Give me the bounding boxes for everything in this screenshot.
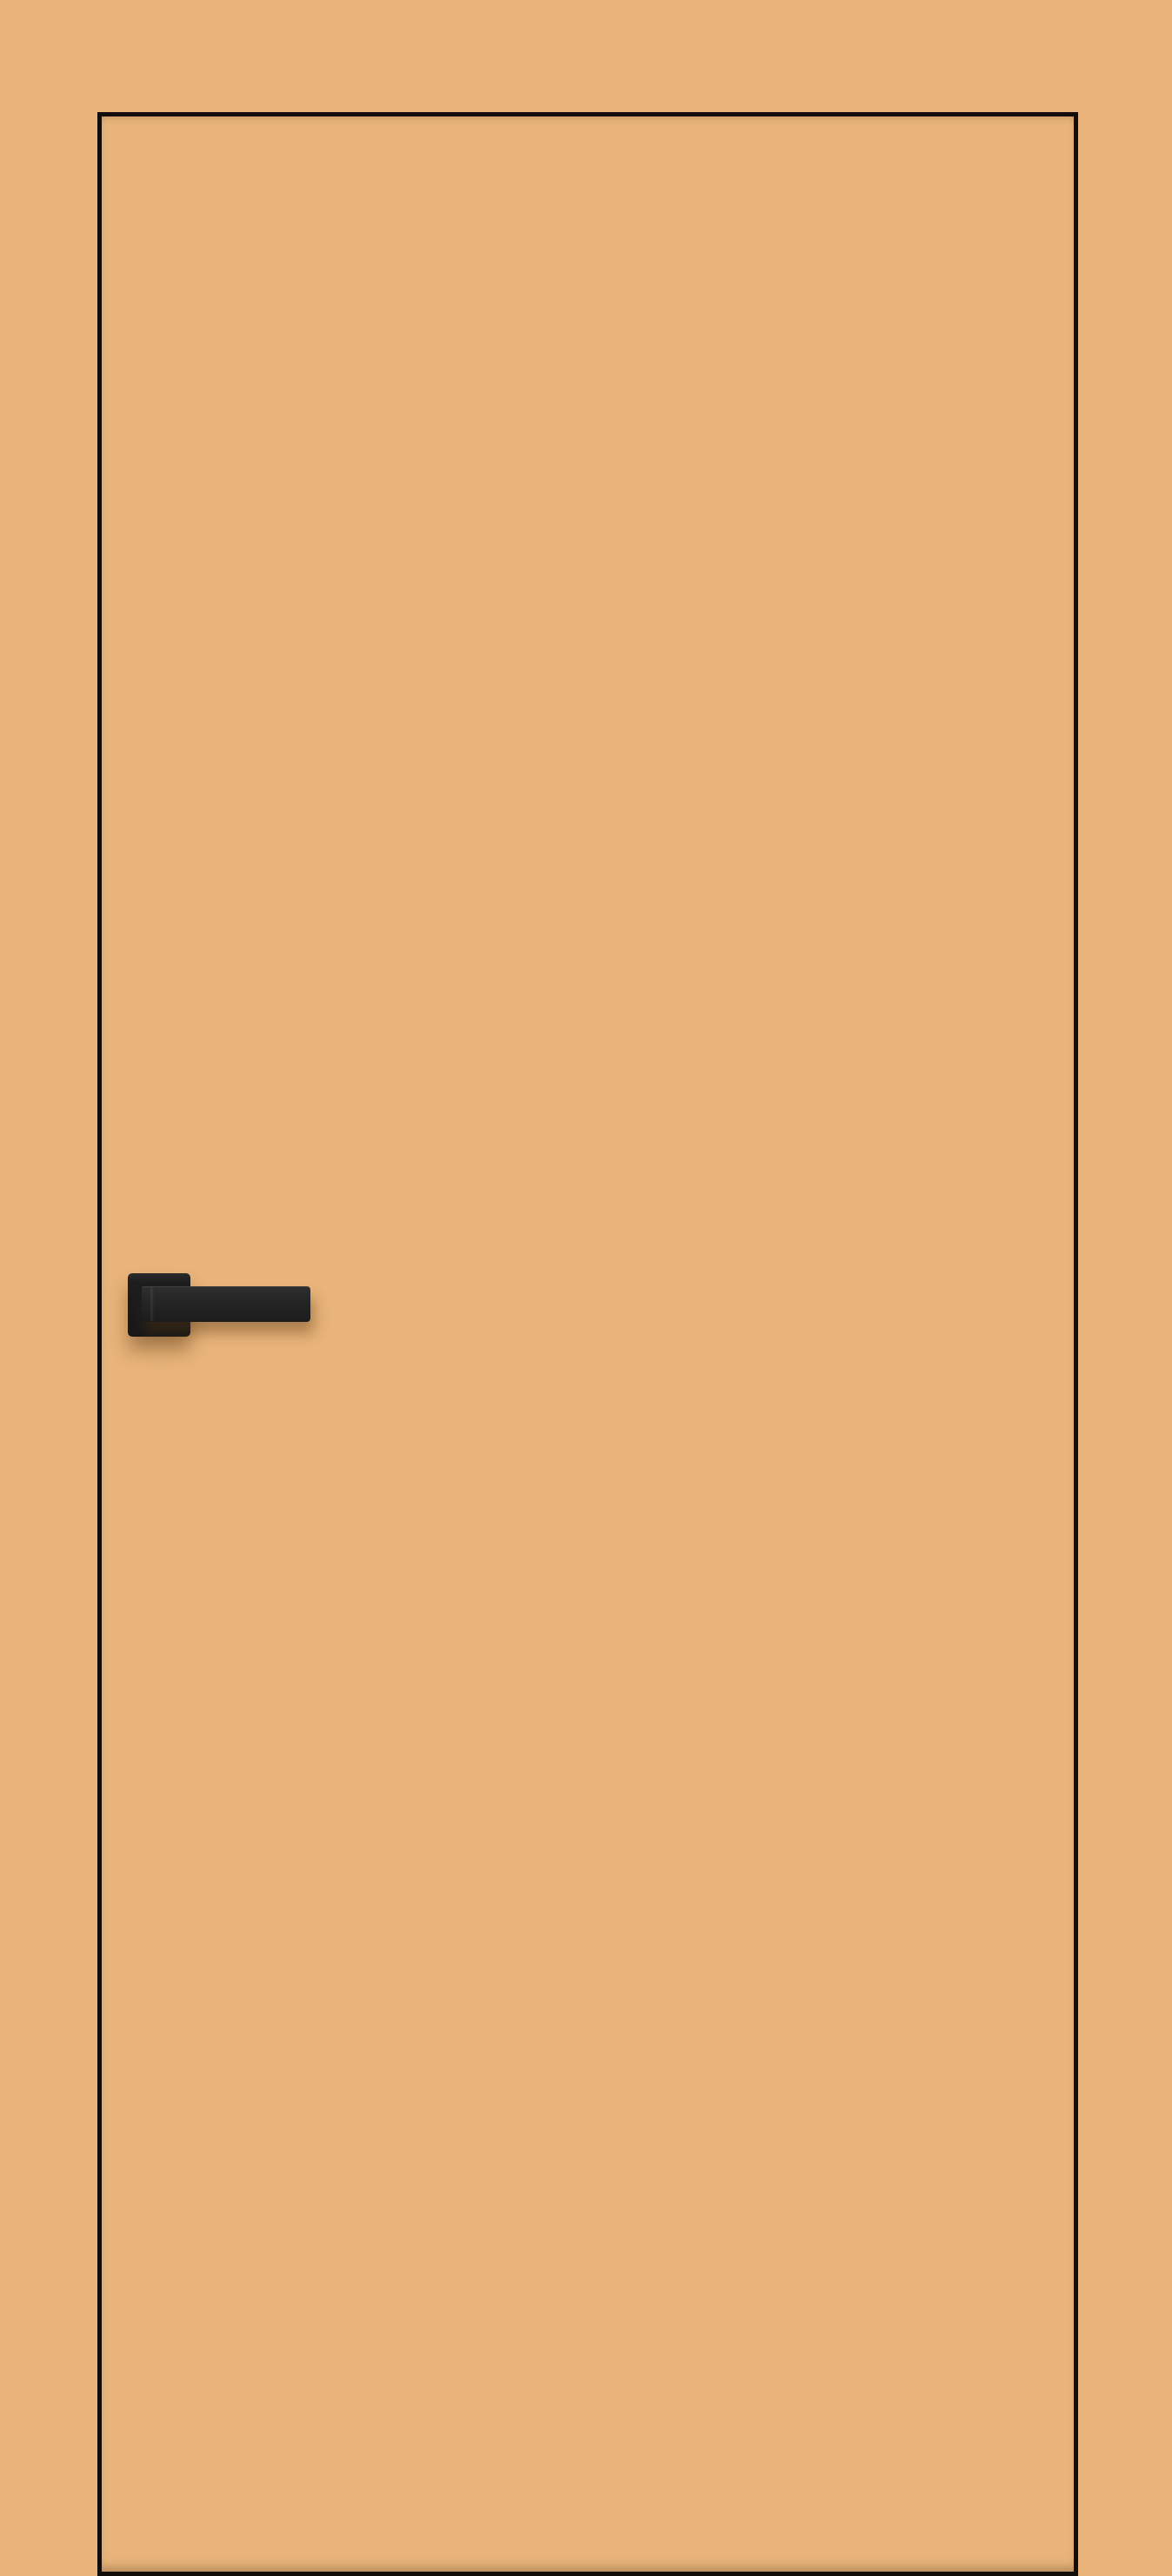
- door-handle: [128, 1273, 319, 1343]
- handle-lever-highlight: [150, 1287, 154, 1321]
- door-panel: [97, 112, 1078, 2576]
- door-product-image: [0, 0, 1172, 2576]
- handle-lever: [142, 1286, 310, 1322]
